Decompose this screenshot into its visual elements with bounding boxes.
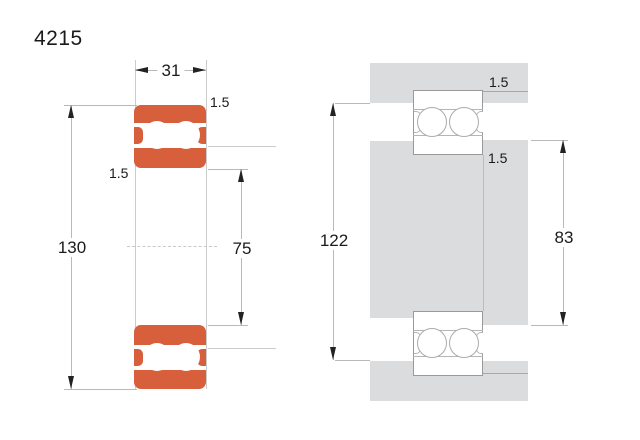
bearing-designation: 4215 — [34, 27, 83, 51]
shaft-left-collar — [370, 141, 413, 318]
dim-width-arrow-left — [135, 67, 148, 73]
extension-line-right-edge — [206, 60, 207, 389]
shaft-step-edge — [483, 155, 484, 311]
shoulder-ref-line-top — [208, 146, 276, 147]
dim-housing-label: 122 — [316, 231, 352, 250]
dim-width-label: 31 — [158, 61, 185, 80]
dim-shaft-arrow-bottom — [560, 312, 566, 325]
dim-od-arrow-top — [68, 105, 74, 118]
raceway-line — [413, 356, 483, 357]
dim-shaft-arrow-top — [560, 140, 566, 153]
shaft-seat — [413, 155, 483, 311]
dim-housing-arrow-top — [330, 103, 336, 116]
dim-shaft-ext-bottom — [531, 325, 568, 326]
housing-bore-line-top — [483, 91, 528, 92]
ball-mounted-top-right — [449, 107, 479, 137]
chamfer-label-top: 1.5 — [210, 95, 229, 110]
fillet-label-bottom: 1.5 — [488, 151, 507, 166]
dim-bore-label: 75 — [229, 239, 256, 258]
ball-mounted-top-left — [417, 107, 447, 137]
ball-bottom-right — [172, 343, 200, 371]
ball-bottom-left — [143, 343, 171, 371]
ring-shoulder-tab — [134, 349, 143, 366]
shaft-shoulder — [483, 140, 528, 325]
ball-mounted-bottom-right — [449, 328, 479, 358]
shoulder-ref-line-bottom — [208, 348, 276, 349]
ball-mounted-bottom-left — [417, 328, 447, 358]
ball-top-left — [143, 121, 171, 149]
dim-od-arrow-bottom — [68, 376, 74, 389]
raceway-line — [413, 135, 483, 136]
dim-bore-ext-bottom — [208, 325, 248, 326]
dim-bore-arrow-bottom — [238, 312, 244, 325]
dim-width-arrow-right — [193, 67, 206, 73]
dim-housing-ext-bottom — [335, 360, 370, 361]
housing-bore-line-bottom — [483, 373, 528, 374]
chamfer-label-bottom: 1.5 — [109, 166, 128, 181]
dim-housing-arrow-bottom — [330, 347, 336, 360]
dim-od-label: 130 — [54, 238, 90, 257]
fillet-label-top: 1.5 — [489, 75, 508, 90]
bearing-drawing-canvas: 4215 31 130 75 1.5 1.5 — [0, 0, 640, 440]
dim-od-ext-bottom — [64, 389, 137, 390]
dim-od-ext-top — [64, 105, 137, 106]
centerline — [127, 246, 217, 247]
dim-shaft-label: 83 — [551, 228, 578, 247]
dim-bore-arrow-top — [238, 169, 244, 182]
dim-housing-ext-top — [335, 103, 370, 104]
ball-top-right — [172, 121, 200, 149]
ring-shoulder-tab — [134, 127, 143, 144]
